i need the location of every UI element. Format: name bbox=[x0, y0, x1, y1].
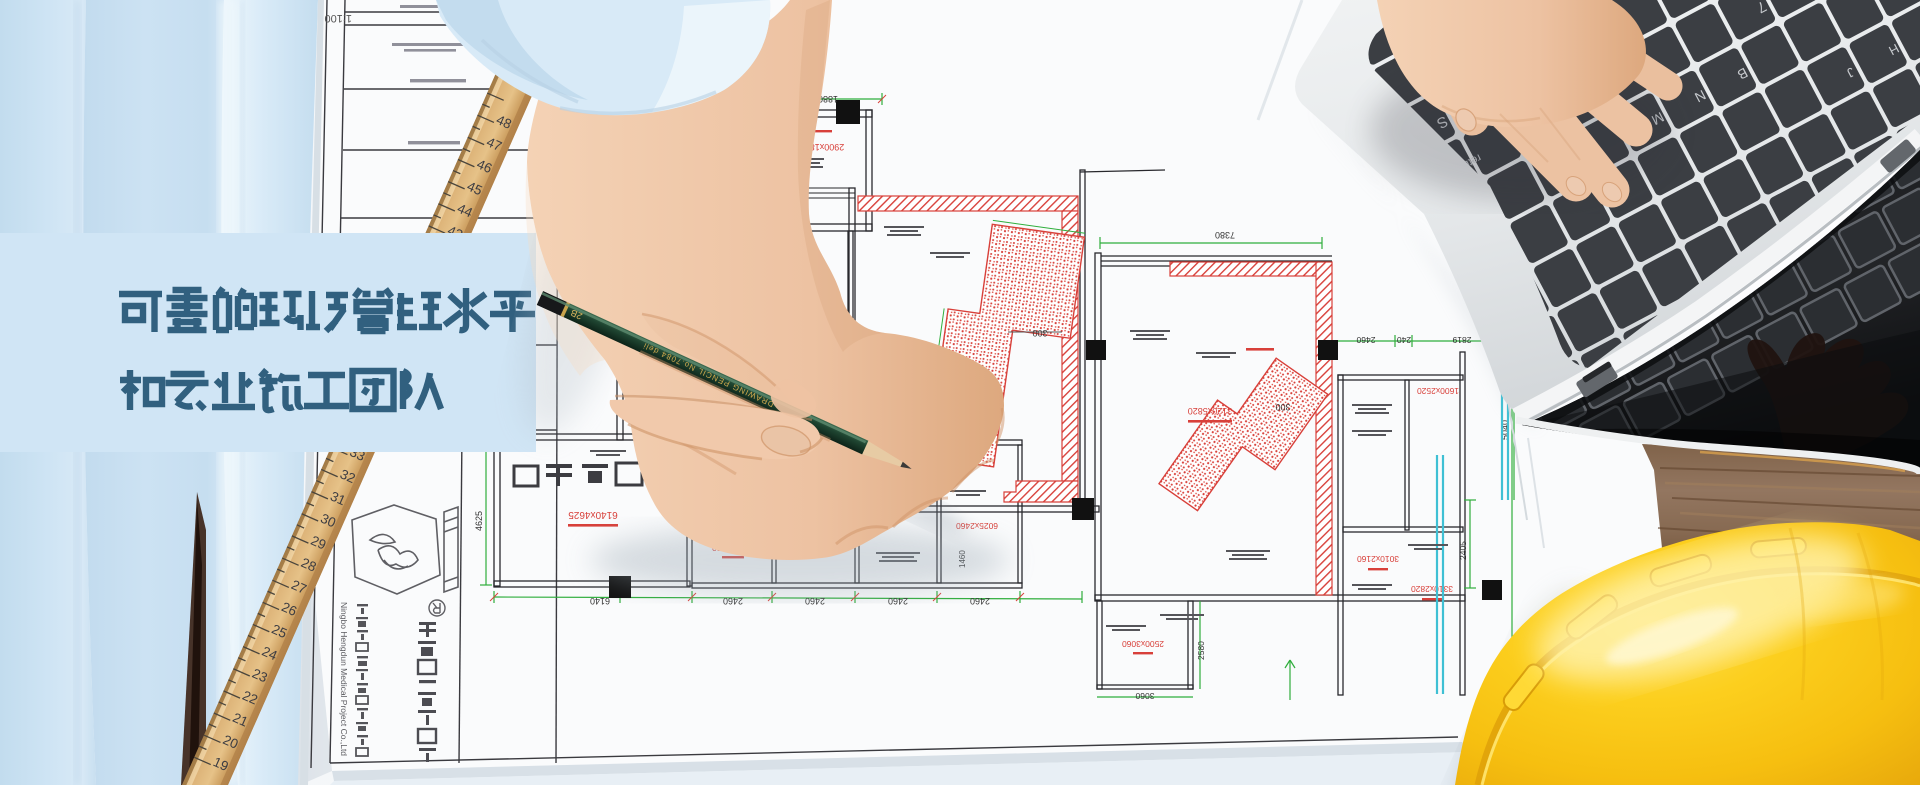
svg-text:6140: 6140 bbox=[590, 596, 610, 606]
svg-text:7380: 7380 bbox=[1215, 230, 1235, 240]
svg-text:2460: 2460 bbox=[723, 596, 743, 606]
svg-text:2460: 2460 bbox=[888, 596, 908, 606]
svg-text:1600x2520: 1600x2520 bbox=[1417, 386, 1459, 396]
svg-text:6140x4625: 6140x4625 bbox=[568, 509, 618, 520]
svg-text:2460: 2460 bbox=[970, 596, 990, 606]
svg-text:2405: 2405 bbox=[1458, 541, 1468, 560]
svg-text:2460: 2460 bbox=[805, 596, 825, 606]
svg-text:2500x3060: 2500x3060 bbox=[1122, 639, 1164, 649]
svg-text:3010x2160: 3010x2160 bbox=[1357, 554, 1399, 564]
svg-text:300: 300 bbox=[1032, 328, 1047, 338]
svg-text:3310x2820: 3310x2820 bbox=[1411, 584, 1453, 594]
svg-text:1:100: 1:100 bbox=[324, 12, 352, 24]
svg-text:Ningbo Hengdun Medical Project: Ningbo Hengdun Medical Project Co.,Ltd bbox=[339, 602, 349, 756]
svg-text:4625: 4625 bbox=[474, 511, 484, 531]
svg-text:2460: 2460 bbox=[1356, 335, 1375, 345]
svg-text:2580: 2580 bbox=[1196, 641, 1206, 660]
svg-text:3120x5820: 3120x5820 bbox=[1188, 406, 1233, 416]
svg-text:240: 240 bbox=[1397, 335, 1411, 345]
svg-text:300: 300 bbox=[1275, 402, 1290, 412]
svg-text:3060: 3060 bbox=[1135, 691, 1154, 701]
svg-text:2819: 2819 bbox=[1452, 335, 1471, 345]
